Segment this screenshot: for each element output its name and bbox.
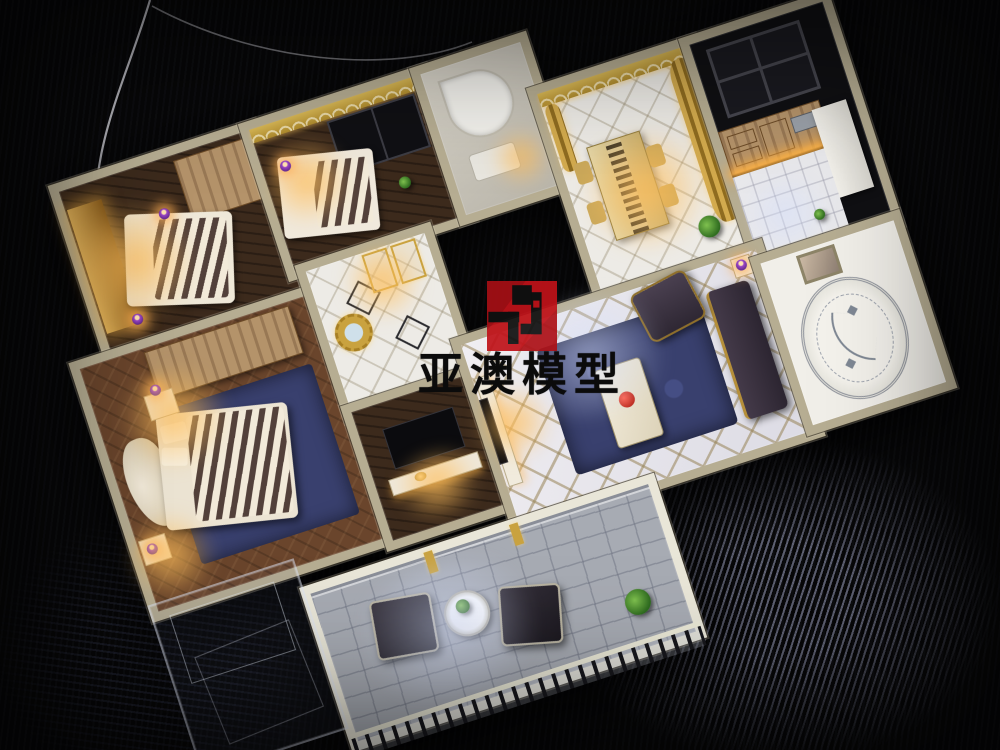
shower-enclosure bbox=[437, 60, 523, 146]
hallway-sunburst-mirror bbox=[330, 309, 378, 357]
apartment-model bbox=[14, 0, 985, 750]
balcony-floor-plant bbox=[622, 586, 655, 619]
bedroom-3-window-mullion bbox=[371, 109, 389, 159]
bedroom-2-bed bbox=[124, 211, 235, 307]
balcony-armchair-1 bbox=[368, 592, 439, 662]
bedroom-3-vase-plant bbox=[397, 175, 412, 190]
bathroom-vanity bbox=[468, 141, 522, 182]
coffee-table-flowers bbox=[617, 389, 637, 409]
bedroom-3-bed bbox=[277, 148, 381, 240]
balcony-round-table bbox=[438, 584, 496, 642]
dining-table-runner bbox=[604, 138, 649, 234]
master-pillow-2 bbox=[162, 448, 188, 466]
master-zebra-duvet bbox=[186, 406, 295, 522]
kitchen-cabinet-door bbox=[759, 118, 796, 157]
scene-photo: 亚澳模型 bbox=[0, 0, 1000, 750]
master-pillow-1 bbox=[159, 421, 189, 445]
balcony-armchair-2 bbox=[498, 583, 564, 647]
bedroom-3-zebra-throw bbox=[311, 156, 374, 227]
bedroom-2-zebra-duvet bbox=[152, 217, 229, 300]
hallway-floor-diamond-2 bbox=[395, 315, 430, 350]
master-bed bbox=[155, 402, 298, 531]
entry-floor-medallion bbox=[785, 263, 924, 414]
